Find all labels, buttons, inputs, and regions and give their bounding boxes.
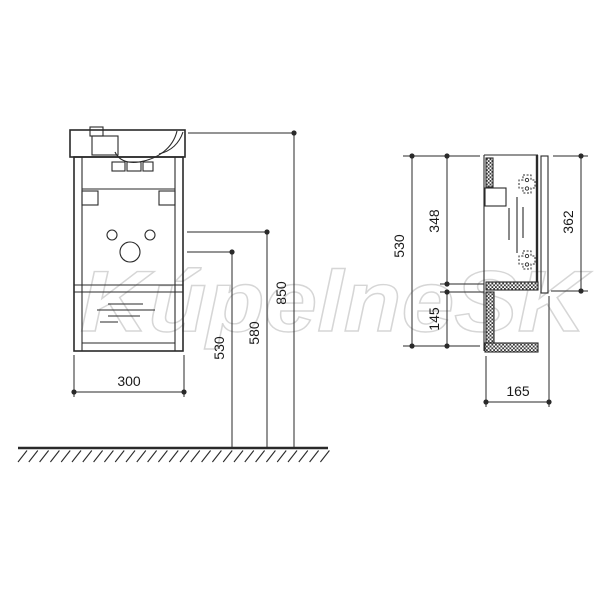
dim-label-side-165: 165 bbox=[506, 383, 530, 399]
mounting-bracket-left bbox=[82, 191, 98, 205]
niche-back-panel-section bbox=[486, 292, 494, 343]
drain-detail-right bbox=[143, 162, 153, 171]
floor-hatch-stroke bbox=[115, 451, 124, 463]
ground bbox=[18, 448, 329, 462]
floor-hatch-stroke bbox=[191, 451, 200, 463]
floor-hatch-stroke bbox=[277, 451, 286, 463]
floor-hatch-stroke bbox=[29, 451, 38, 463]
floor-hatch-stroke bbox=[18, 451, 27, 463]
floor-hatch-stroke bbox=[104, 451, 113, 463]
basin-outline bbox=[70, 130, 185, 157]
dim-label-front-850: 850 bbox=[273, 281, 289, 305]
floor-hatch-stroke bbox=[169, 451, 178, 463]
tap-hole bbox=[90, 127, 103, 136]
fixing-hole-right bbox=[145, 230, 155, 240]
floor-hatch-stroke bbox=[320, 451, 329, 463]
fixing-hole-left bbox=[107, 230, 117, 240]
floor-hatch-stroke bbox=[61, 451, 70, 463]
floor-hatch-stroke bbox=[223, 451, 232, 463]
floor-hatch-stroke bbox=[266, 451, 275, 463]
drain-detail-left bbox=[112, 162, 125, 171]
floor-hatch-stroke bbox=[212, 451, 221, 463]
floor-hatch-stroke bbox=[256, 451, 265, 463]
watermark-text: KúpelneSK bbox=[80, 254, 592, 350]
floor-hatch-stroke bbox=[137, 451, 146, 463]
mounting-bracket-right bbox=[159, 191, 175, 205]
dim-label-side-530: 530 bbox=[391, 234, 407, 258]
floor-hatching bbox=[18, 451, 329, 463]
floor-hatch-stroke bbox=[299, 451, 308, 463]
floor-hatch-stroke bbox=[234, 451, 243, 463]
floor-hatch-stroke bbox=[83, 451, 92, 463]
dim-label-side-362: 362 bbox=[560, 210, 576, 234]
dim-label-front-width: 300 bbox=[117, 373, 141, 389]
technical-drawing-vanity-unit: KúpelneSK bbox=[0, 0, 600, 600]
drain-detail-middle bbox=[127, 162, 141, 171]
floor-hatch-stroke bbox=[126, 451, 135, 463]
wall-rail-section bbox=[486, 158, 493, 187]
floor-hatch-stroke bbox=[288, 451, 297, 463]
dim-label-front-580: 580 bbox=[246, 321, 262, 345]
floor-hatch-stroke bbox=[245, 451, 254, 463]
basin-bowl-inner-curve bbox=[159, 132, 183, 154]
floor-hatch-stroke bbox=[310, 451, 319, 463]
floor-hatch-stroke bbox=[202, 451, 211, 463]
dim-label-side-145: 145 bbox=[426, 307, 442, 331]
floor-hatch-stroke bbox=[94, 451, 103, 463]
cabinet-bottom-panel-section bbox=[486, 282, 538, 290]
watermark: KúpelneSK bbox=[80, 254, 592, 350]
floor-hatch-stroke bbox=[180, 451, 189, 463]
dim-front-width: 300 bbox=[71, 355, 186, 397]
floor-hatch-stroke bbox=[72, 451, 81, 463]
hinge-top bbox=[519, 175, 535, 193]
floor-hatch-stroke bbox=[148, 451, 157, 463]
mounting-block bbox=[485, 188, 506, 206]
floor-hatch-stroke bbox=[50, 451, 59, 463]
basin-deck bbox=[92, 136, 118, 155]
dim-label-front-530: 530 bbox=[211, 336, 227, 360]
floor-hatch-stroke bbox=[40, 451, 49, 463]
niche-bottom-panel-section bbox=[485, 343, 538, 352]
floor-hatch-stroke bbox=[158, 451, 167, 463]
dim-label-side-348: 348 bbox=[426, 209, 442, 233]
